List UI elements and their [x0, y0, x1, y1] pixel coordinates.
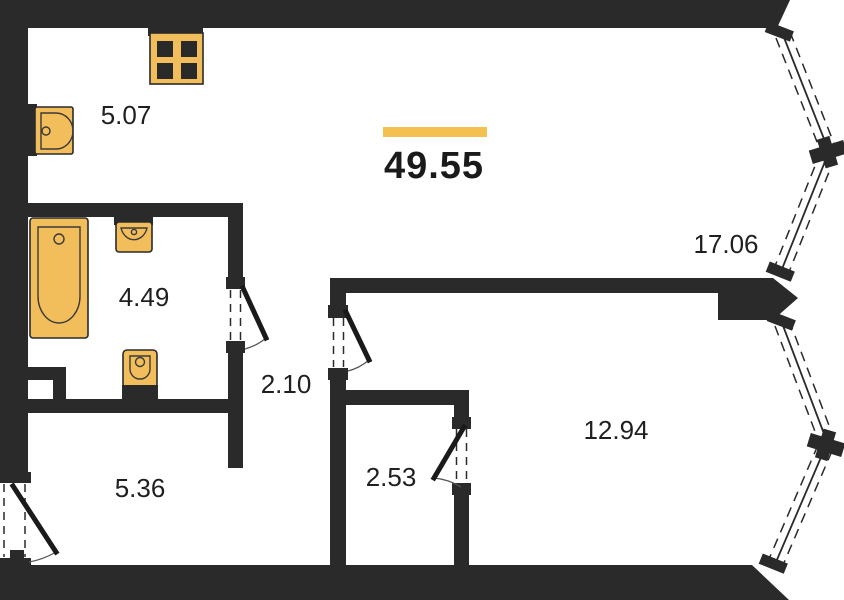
total-area-label: 49.55 — [384, 145, 484, 187]
wardrobe-right-wall-lower — [454, 495, 469, 565]
living-bedroom-wall — [330, 278, 720, 293]
wardrobe-door — [434, 417, 471, 495]
room-label-corridor: 2.10 — [261, 369, 312, 399]
left-wall-upper — [0, 0, 28, 473]
bathtub-icon — [30, 218, 88, 338]
entrance-door — [0, 472, 56, 569]
stove-icon — [148, 28, 203, 84]
room-label-wardrobe: 2.53 — [366, 462, 417, 492]
room-label-living: 17.06 — [693, 229, 758, 259]
wardrobe-right-wall-upper — [454, 405, 469, 419]
washbasin-icon — [114, 215, 153, 252]
bottom-wall — [0, 565, 789, 600]
bedroom-door — [328, 305, 369, 380]
floor-plan-page: 49.55 5.07 4.49 2.10 5.36 2.53 12.94 17.… — [0, 0, 844, 600]
kitchen-sink-icon — [28, 104, 73, 156]
corridor-right-wall-lower — [330, 380, 346, 565]
bathroom-top-wall — [28, 203, 243, 217]
bathroom-door — [226, 277, 266, 353]
living-bedroom-wall-end — [718, 278, 798, 320]
bathroom-right-wall-upper — [228, 203, 243, 277]
room-label-kitchen: 5.07 — [101, 100, 152, 130]
top-wall — [0, 0, 790, 28]
floor-plan: 49.55 5.07 4.49 2.10 5.36 2.53 12.94 17.… — [0, 0, 844, 600]
wardrobe-top-wall — [346, 390, 469, 405]
toilet-icon — [122, 350, 158, 404]
room-label-hallway: 5.36 — [115, 473, 166, 503]
total-area-accent-bar — [383, 127, 487, 137]
room-label-bedroom: 12.94 — [583, 415, 648, 445]
room-label-bathroom: 4.49 — [119, 282, 170, 312]
